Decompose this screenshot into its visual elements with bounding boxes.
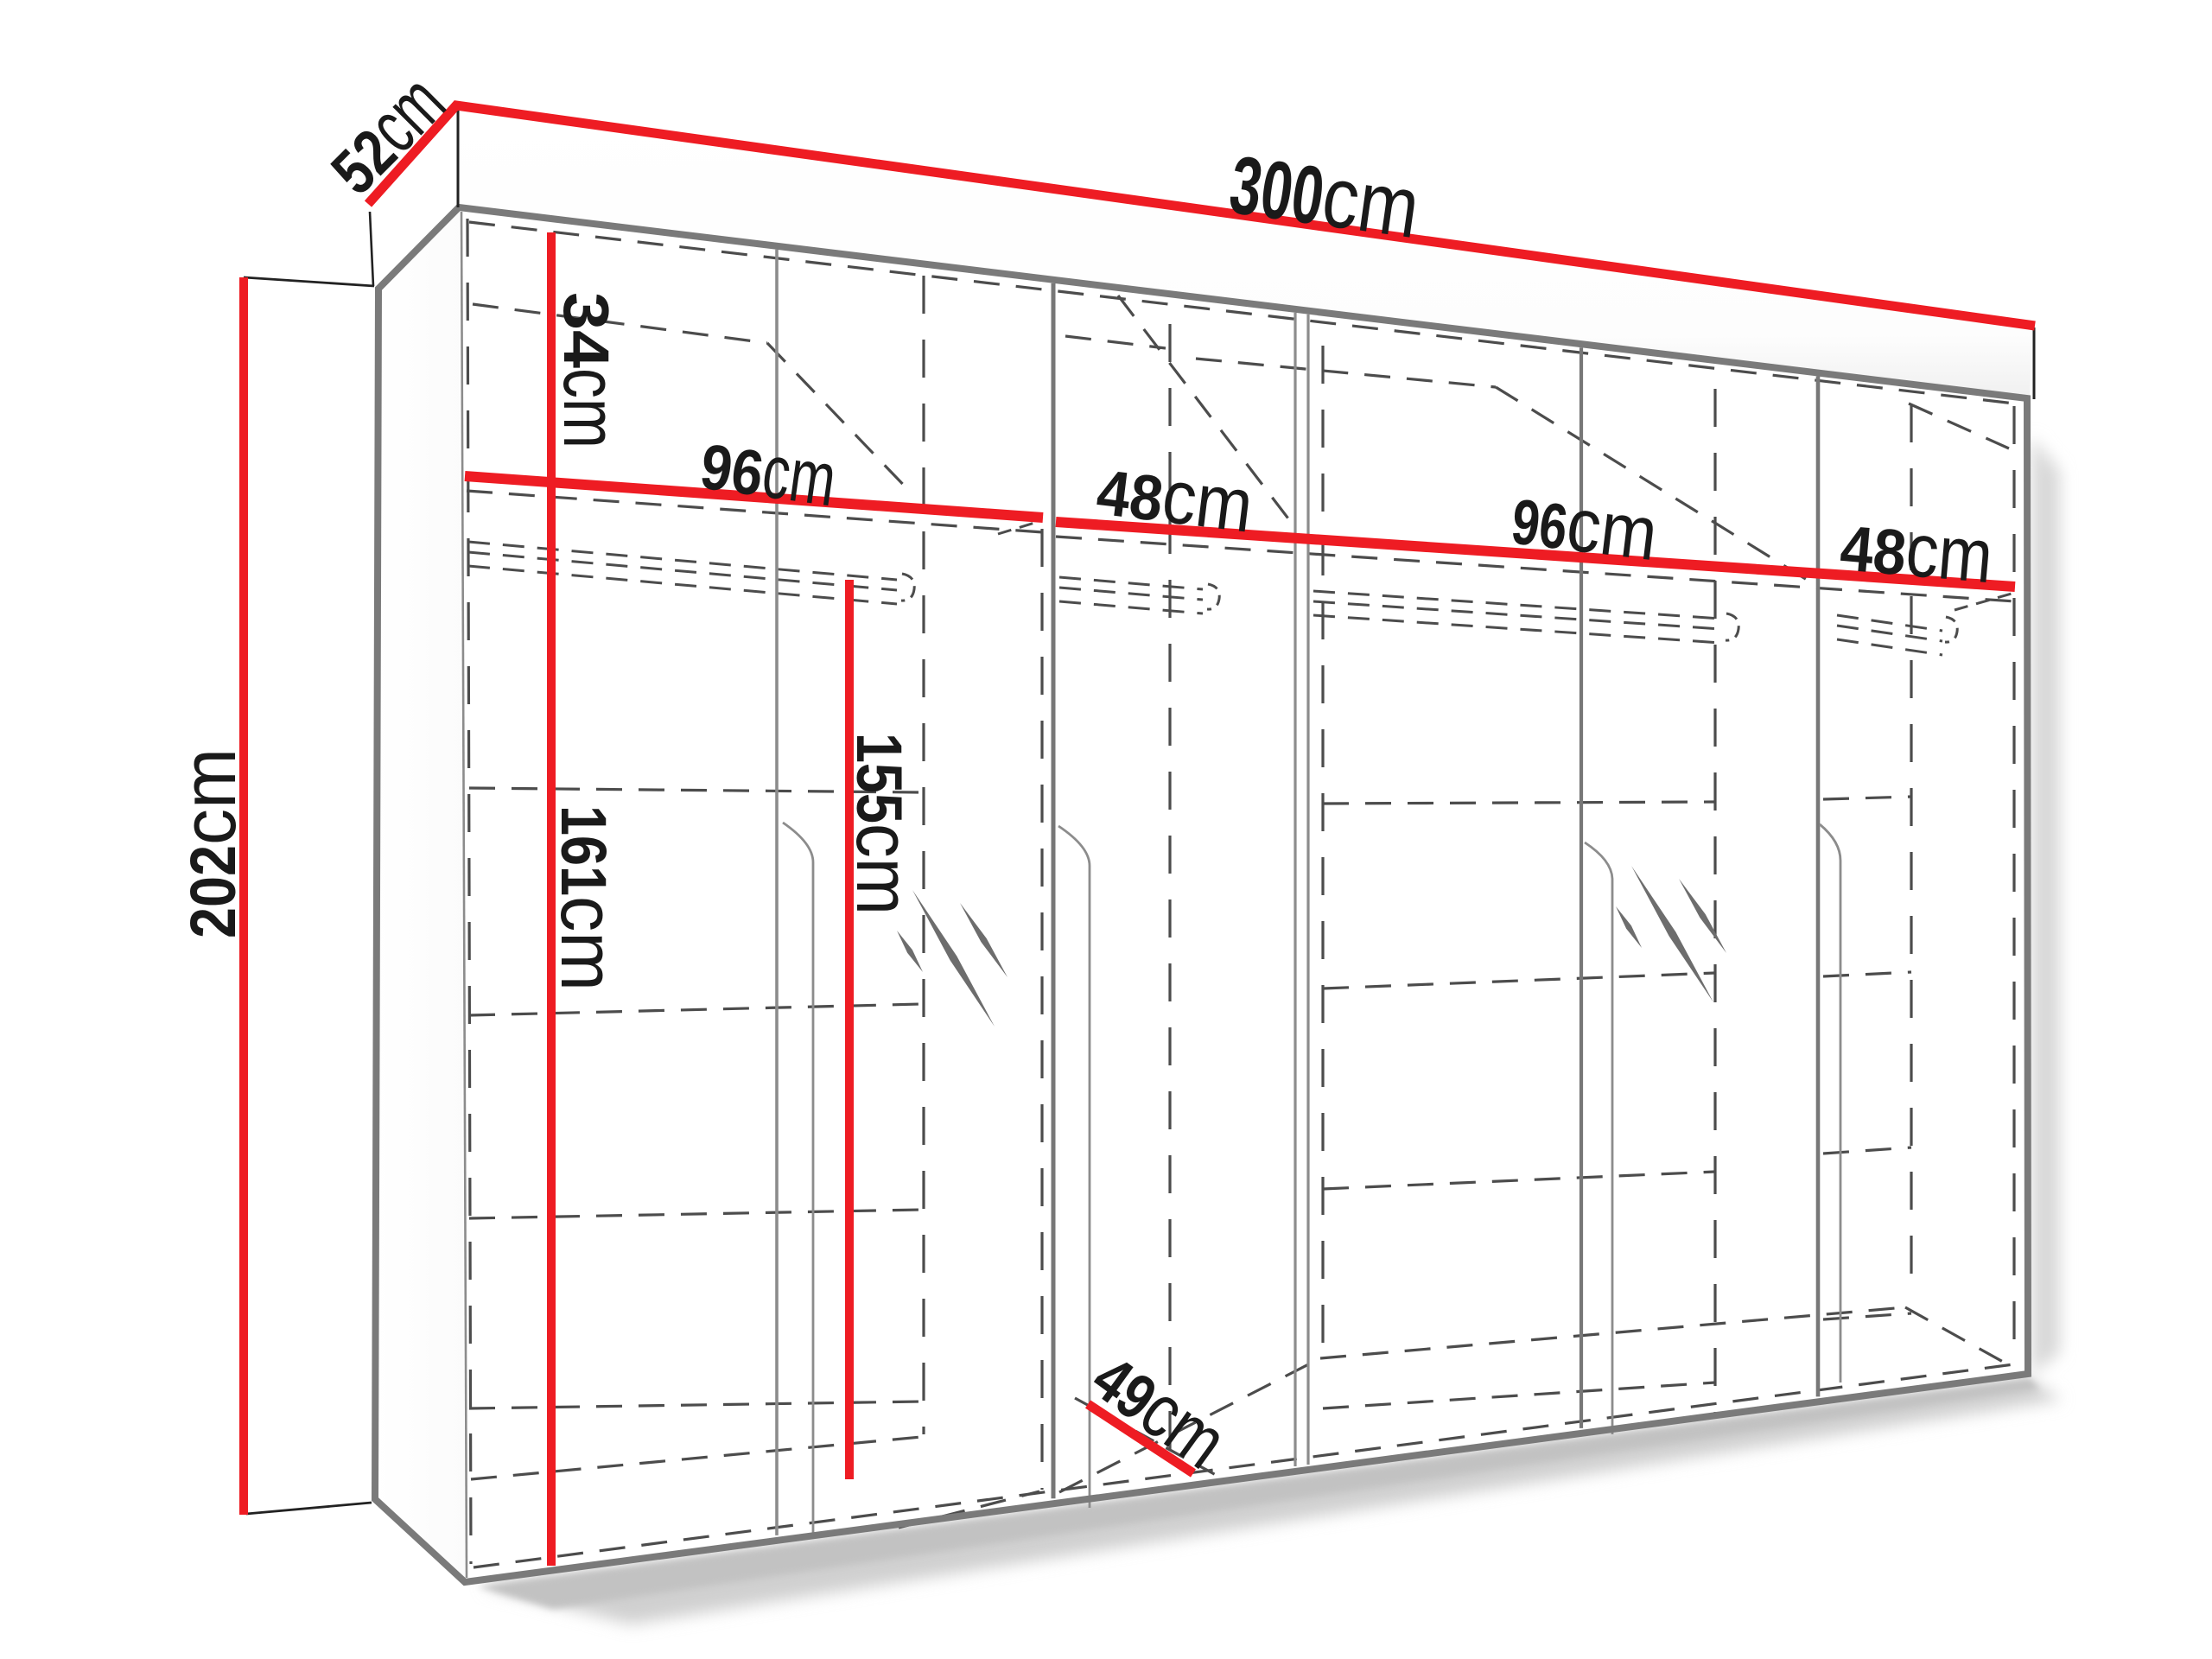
svg-text:34: 34 [550, 292, 621, 368]
svg-text:cm: cm [758, 429, 842, 523]
svg-text:cm: cm [841, 823, 926, 915]
svg-text:300: 300 [1224, 139, 1330, 243]
svg-text:161: 161 [548, 805, 620, 896]
svg-text:96: 96 [696, 430, 768, 510]
svg-text:155: 155 [843, 733, 915, 823]
svg-text:96: 96 [1508, 486, 1572, 564]
svg-text:cm: cm [1562, 481, 1662, 576]
svg-text:cm: cm [544, 896, 629, 991]
svg-text:cm: cm [1317, 149, 1425, 257]
svg-text:48: 48 [1838, 513, 1910, 589]
svg-text:cm: cm [1158, 454, 1257, 549]
svg-text:cm: cm [1903, 507, 1996, 599]
svg-text:202: 202 [177, 845, 249, 938]
svg-text:48: 48 [1093, 457, 1166, 536]
svg-text:cm: cm [548, 368, 633, 448]
svg-text:cm: cm [167, 748, 251, 845]
